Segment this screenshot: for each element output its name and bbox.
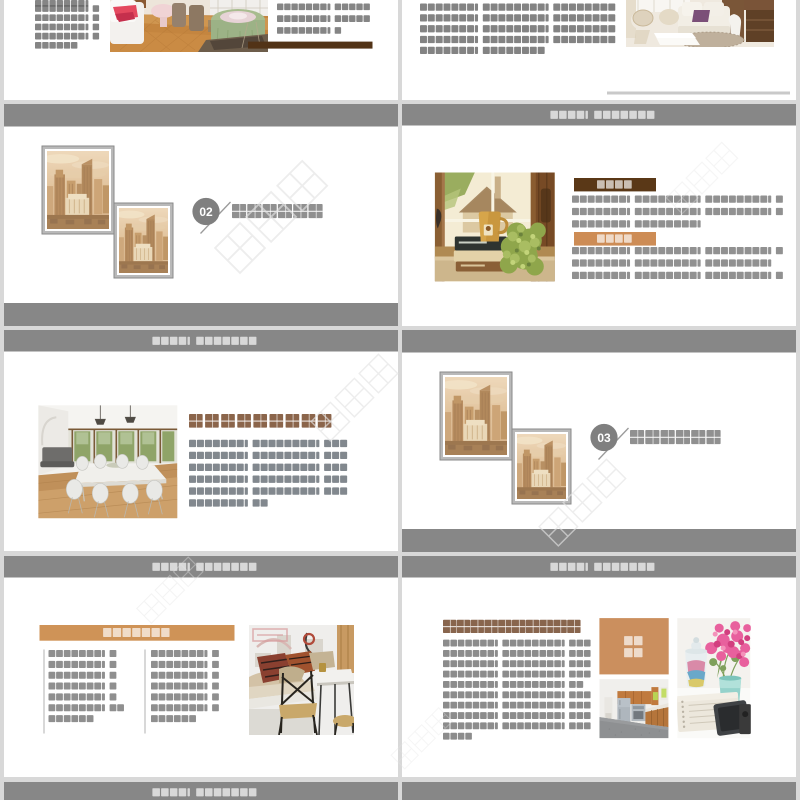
svg-text:02: 02: [199, 205, 213, 219]
svg-text:03: 03: [597, 431, 611, 445]
